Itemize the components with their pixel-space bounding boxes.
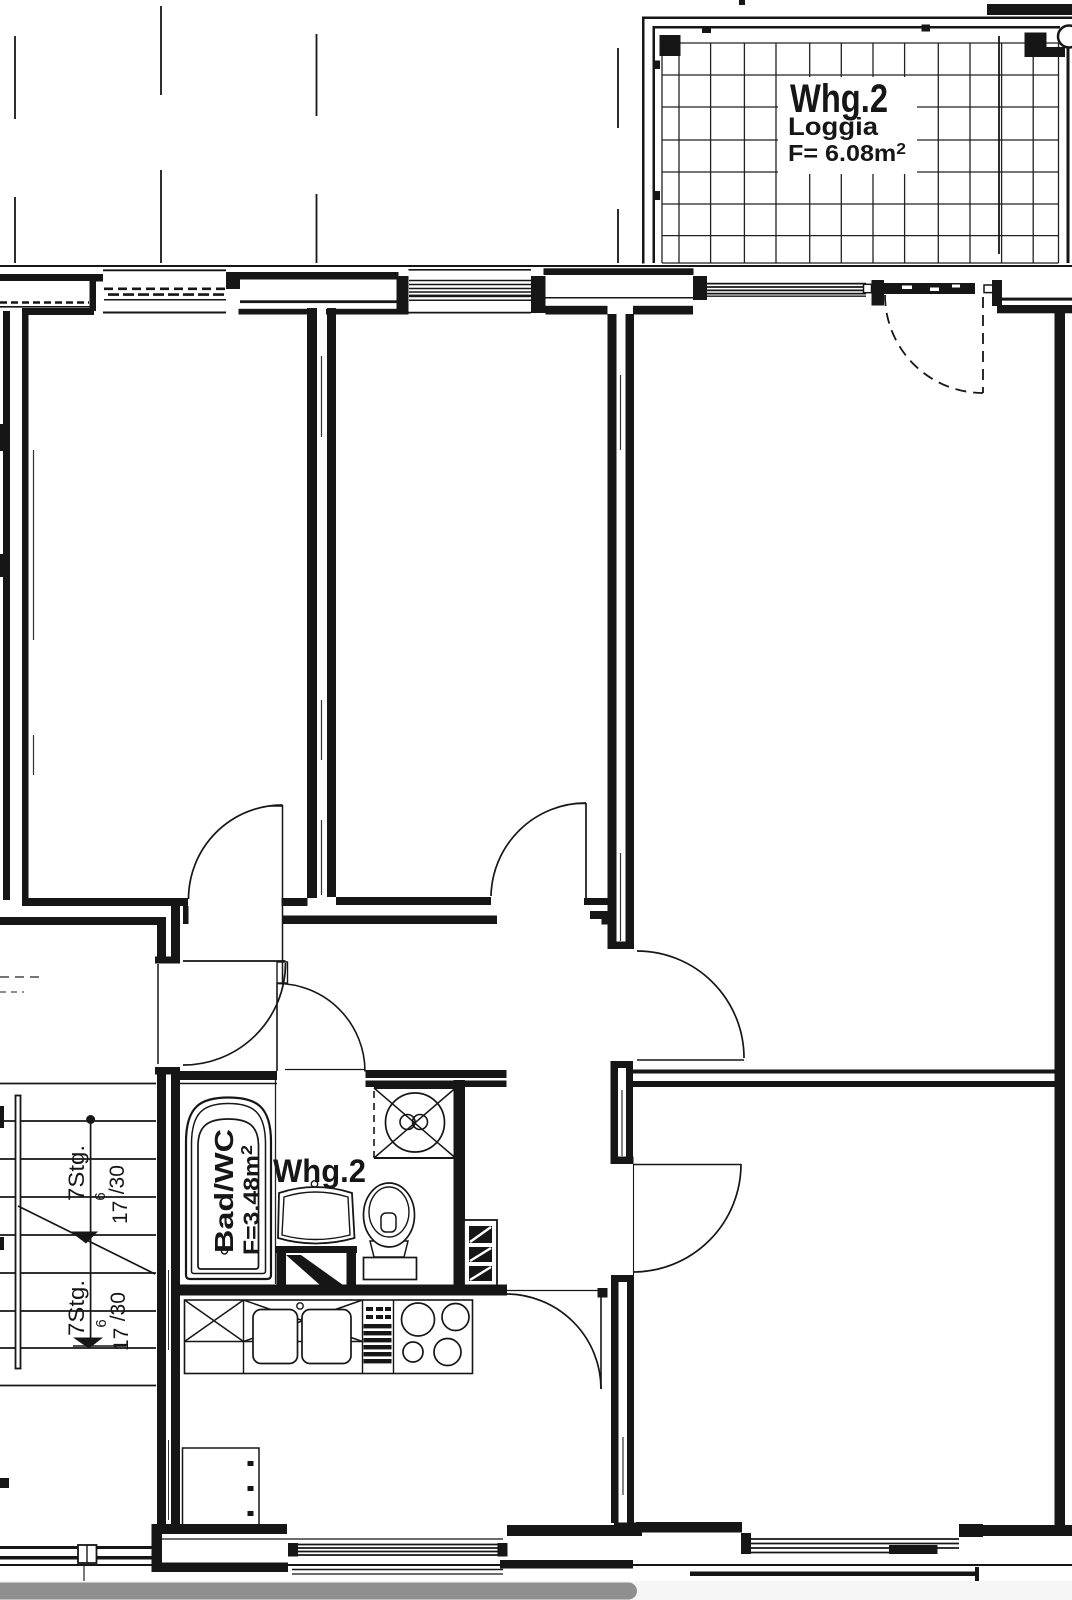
svg-text:F= 6.08m2: F= 6.08m2 [788, 140, 906, 166]
svg-text:7Stg.: 7Stg. [64, 1280, 89, 1336]
svg-text:Bad/WC: Bad/WC [209, 1129, 239, 1253]
svg-text:Whg.2: Whg.2 [273, 1153, 366, 1189]
svg-text:F=3.48m2: F=3.48m2 [239, 1145, 264, 1255]
svg-text:Loggia: Loggia [788, 113, 879, 141]
svg-text:7Stg.: 7Stg. [64, 1145, 89, 1201]
